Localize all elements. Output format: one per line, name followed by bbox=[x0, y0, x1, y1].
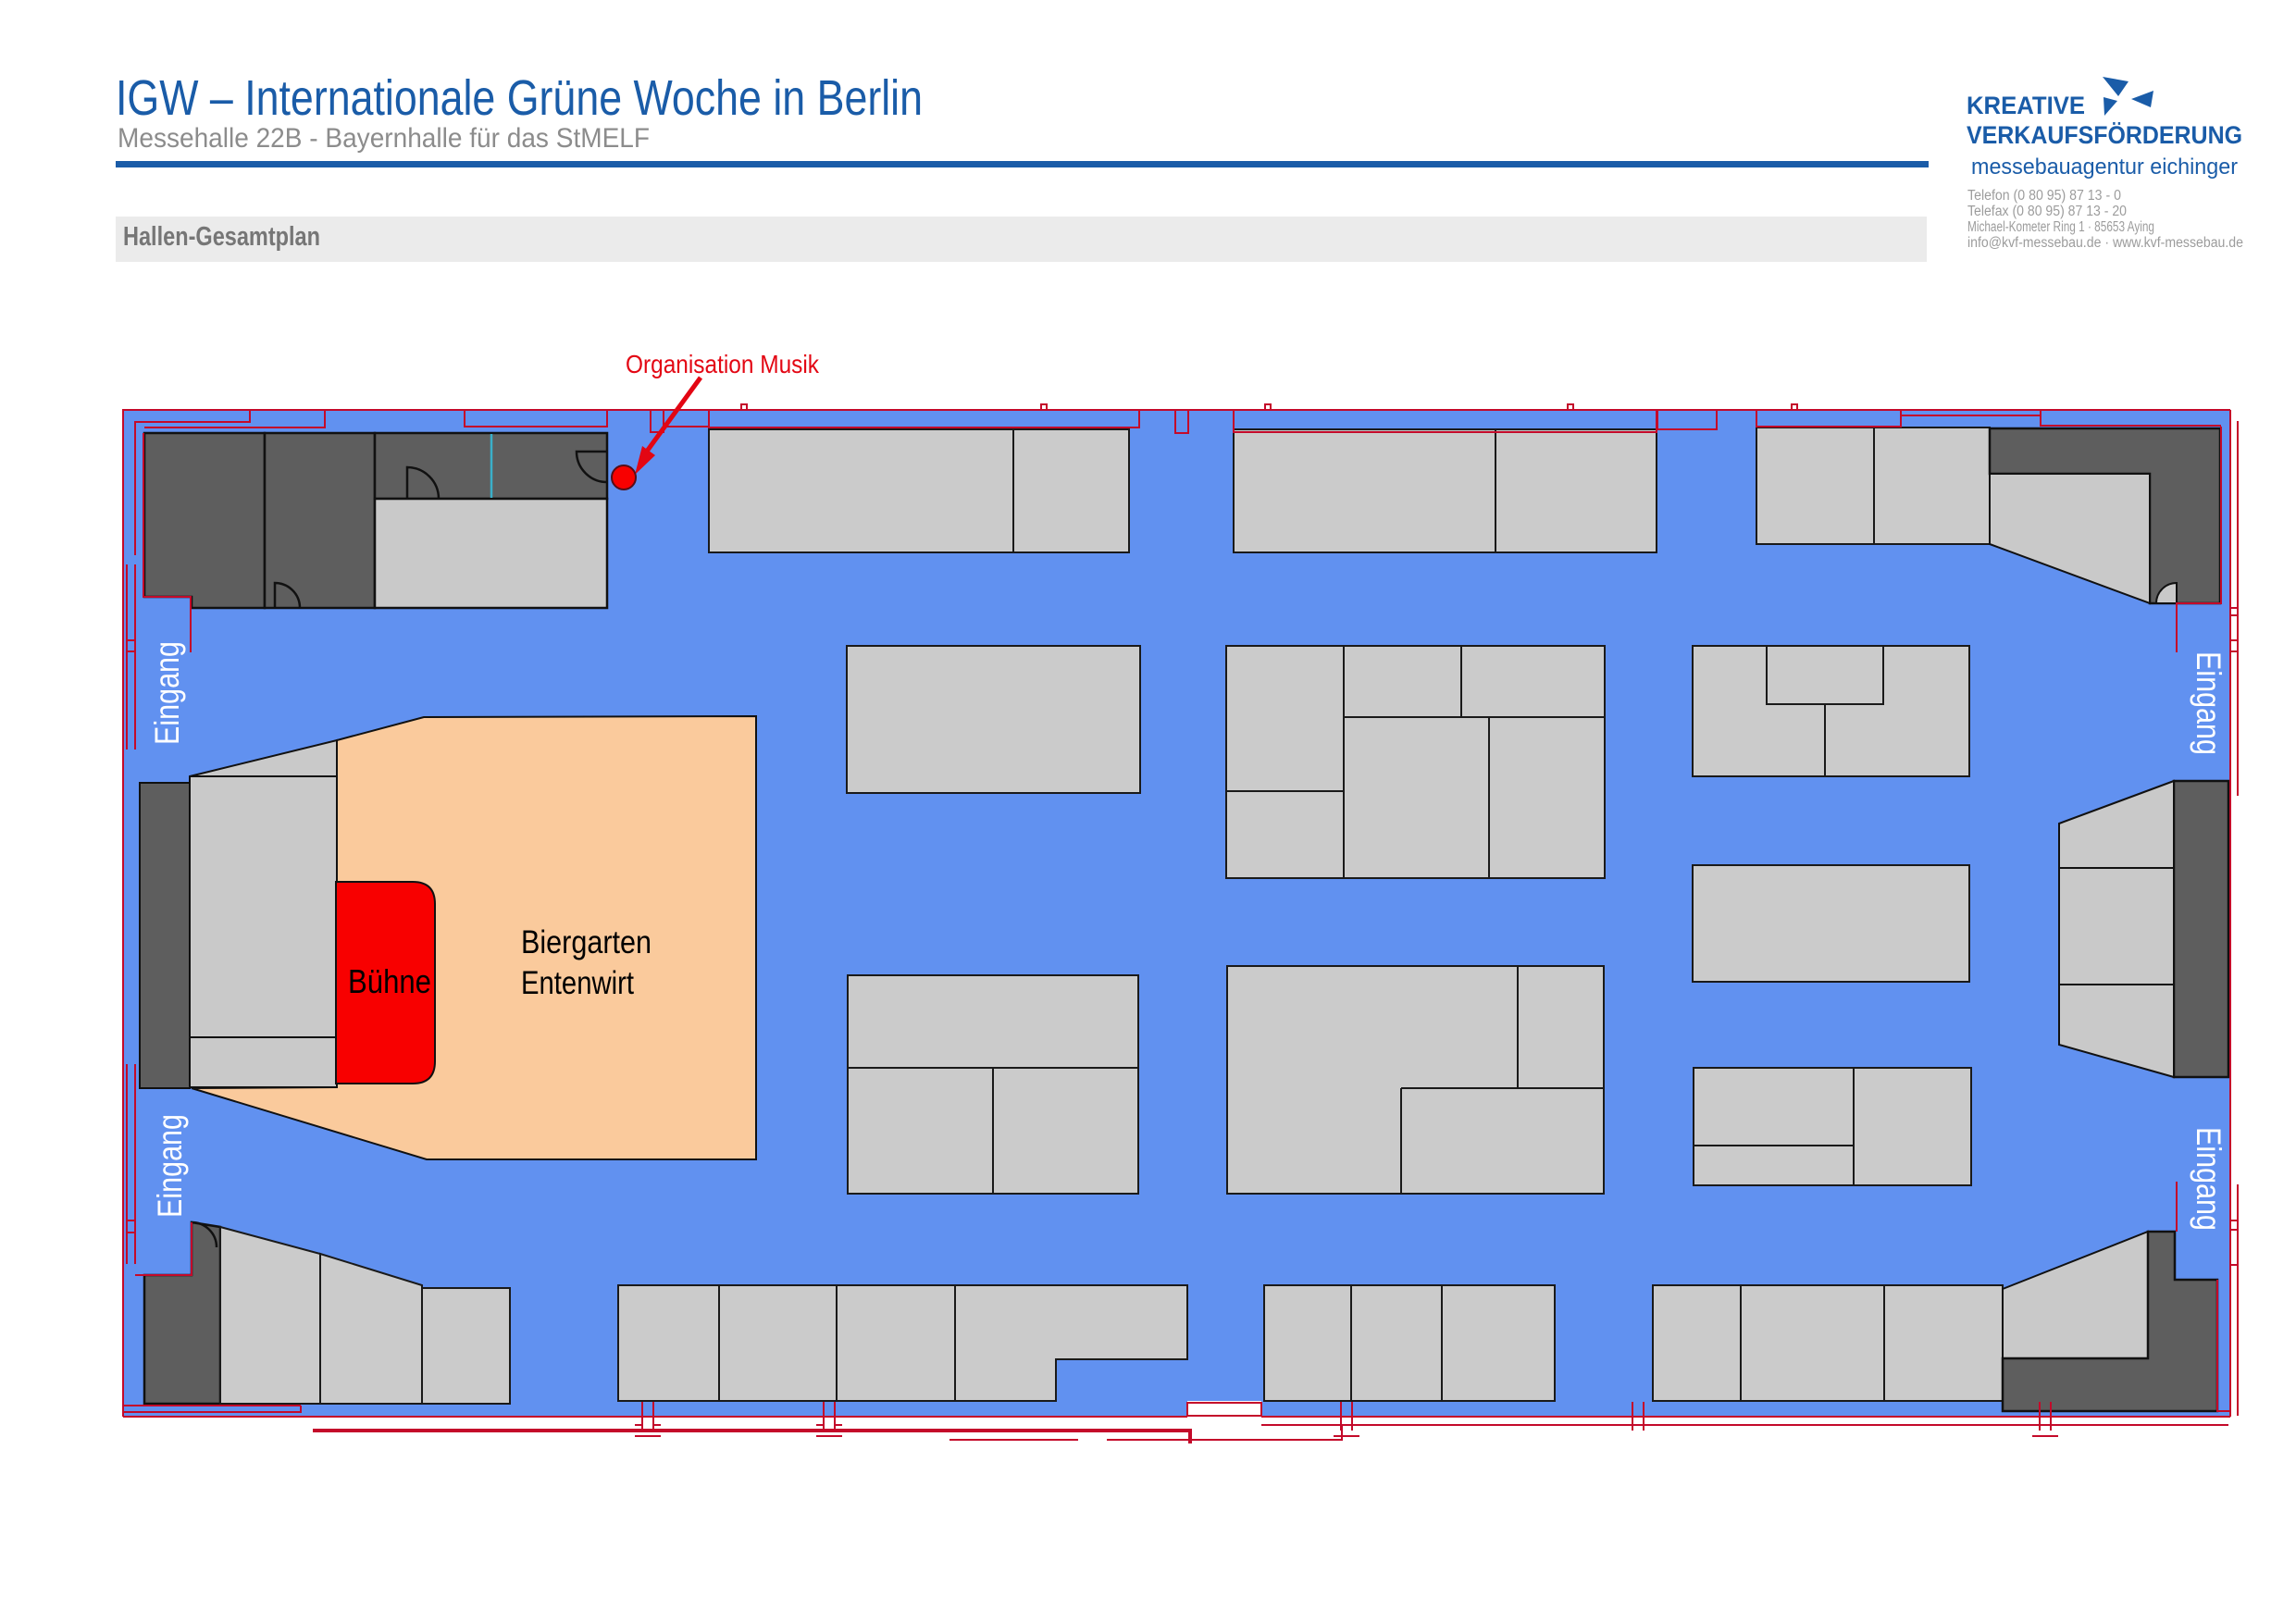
svg-text:IGW – Internationale Grüne Woc: IGW – Internationale Grüne Woche in Berl… bbox=[116, 70, 923, 126]
svg-text:Eingang: Eingang bbox=[151, 1114, 189, 1218]
svg-text:Telefax (0 80 95) 87 13 - 20: Telefax (0 80 95) 87 13 - 20 bbox=[1967, 204, 2127, 219]
svg-text:Bühne: Bühne bbox=[348, 962, 431, 1000]
svg-text:Michael-Kometer Ring 1 · 85653: Michael-Kometer Ring 1 · 85653 Aying bbox=[1967, 219, 2154, 235]
svg-text:VERKAUFSFÖRDERUNG: VERKAUFSFÖRDERUNG bbox=[1967, 121, 2242, 149]
svg-text:Eingang: Eingang bbox=[148, 641, 186, 745]
svg-text:KREATIVE: KREATIVE bbox=[1967, 92, 2085, 119]
svg-text:info@kvf-messebau.de · www.kvf: info@kvf-messebau.de · www.kvf-messebau.… bbox=[1967, 235, 2243, 251]
svg-text:Hallen-Gesamtplan: Hallen-Gesamtplan bbox=[123, 222, 320, 252]
svg-text:Telefon (0 80 95) 87 13 - 0: Telefon (0 80 95) 87 13 - 0 bbox=[1967, 188, 2121, 204]
svg-text:Eingang: Eingang bbox=[2190, 1127, 2228, 1231]
svg-text:Eingang: Eingang bbox=[2190, 651, 2228, 755]
svg-text:messebauagentur eichinger: messebauagentur eichinger bbox=[1971, 155, 2238, 180]
svg-text:Messehalle 22B - Bayernhalle f: Messehalle 22B - Bayernhalle für das StM… bbox=[118, 123, 650, 154]
svg-text:Biergarten: Biergarten bbox=[521, 924, 652, 960]
svg-text:Entenwirt: Entenwirt bbox=[521, 965, 634, 1001]
svg-text:Organisation Musik: Organisation Musik bbox=[626, 350, 820, 378]
